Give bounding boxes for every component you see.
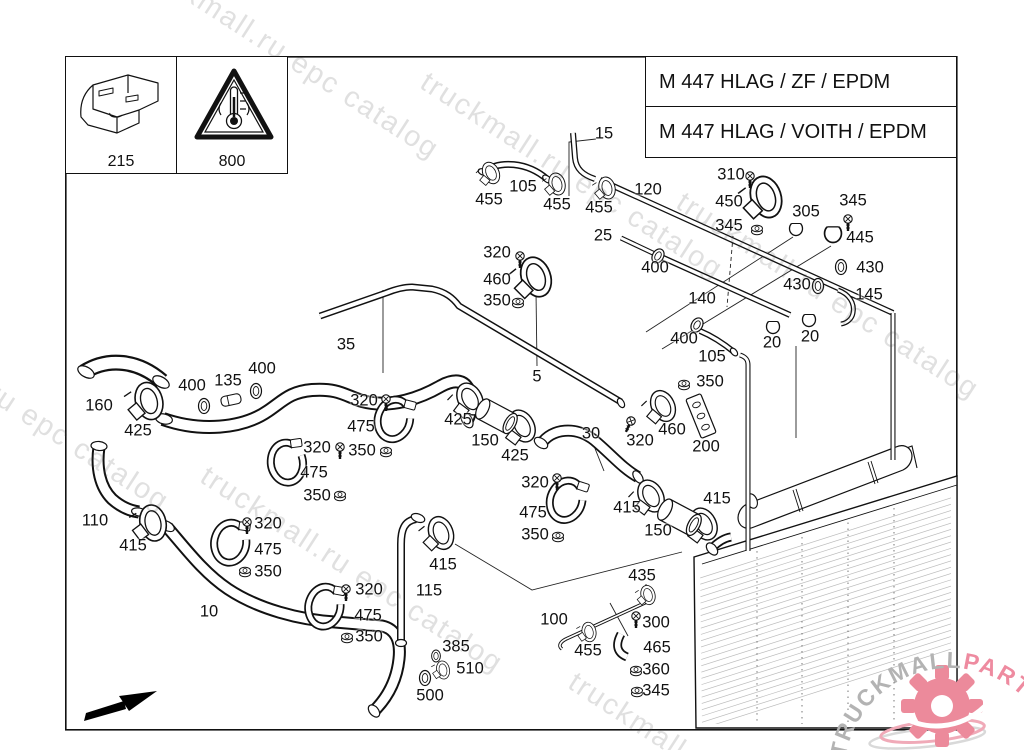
variant-title-zf-text: M 447 HLAG / ZF / EPDM [659,71,890,94]
nut-350 [342,633,353,642]
nut-345 [632,687,643,696]
pipe-holder-475 [545,474,590,524]
nut-350 [513,298,524,307]
hose-clamp-455 [591,175,618,202]
connector-135 [220,393,242,407]
connecting-sleeve-150 [473,397,520,436]
nut-350 [679,380,690,389]
nut-350 [381,447,392,456]
mounting-plate-200 [686,394,717,439]
hose-openings [76,167,739,719]
clamp-ring-400 [199,399,210,414]
hose-10 [167,527,399,711]
clamp-ring-400 [251,384,262,399]
hose-clamp-510 [431,660,451,681]
mounting-bracket-icon [66,57,176,152]
legend-label: 215 [66,153,176,171]
hose-clamp-450 [735,172,786,224]
screw-345 [844,215,852,231]
bracket-clip-445 [825,227,842,243]
direction-arrow-icon [84,691,157,721]
screw-300 [632,612,640,628]
legend-box: 215 800 [65,56,288,174]
pipe-clip-20 [767,322,780,334]
washer-360 [631,666,642,675]
pipe-holder-475 [268,438,307,484]
nut-350 [240,567,251,576]
nut-350 [335,491,346,500]
hose-clamp-460 [506,253,557,305]
pipe-clip-20 [803,315,816,327]
clip-305 [790,224,803,236]
high-temperature-warning-icon [177,57,287,152]
hose-clamp-460 [638,387,680,429]
legend-cell-800: 800 [176,57,287,173]
variant-title-voith-text: M 447 HLAG / VOITH / EPDM [659,121,927,144]
variant-title-voith: M 447 HLAG / VOITH / EPDM [645,106,957,158]
parts-catalog-page: TRUCKMALLPARTS truckmall.ru epc catalog … [0,0,1024,750]
connecting-sleeve-150 [655,497,705,538]
clamp-ring-430 [836,260,847,275]
nut-345 [752,225,763,234]
legend-cell-215: 215 [66,57,176,173]
legend-label: 800 [177,153,287,171]
ring-385 [432,650,441,662]
variant-title-zf: M 447 HLAG / ZF / EPDM [645,56,957,108]
screw-320 [336,443,344,459]
clamp-ring-400 [649,247,666,265]
nut-350 [553,532,564,541]
screw-320 [622,415,636,433]
clamp-ring-430 [813,279,824,294]
ring-500 [420,671,431,686]
